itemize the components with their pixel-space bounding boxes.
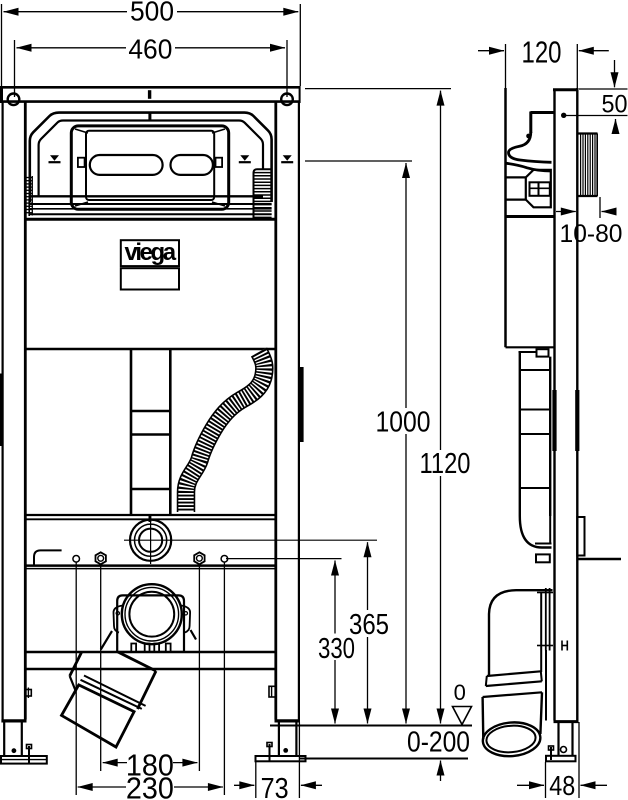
- svg-text:0: 0: [454, 680, 466, 705]
- svg-text:48: 48: [549, 770, 575, 800]
- svg-text:50: 50: [602, 91, 628, 119]
- svg-text:330: 330: [318, 633, 355, 665]
- svg-text:460: 460: [128, 34, 172, 65]
- svg-text:viega: viega: [125, 239, 177, 266]
- svg-text:73: 73: [261, 773, 289, 800]
- svg-text:500: 500: [130, 0, 174, 27]
- svg-text:1000: 1000: [376, 407, 431, 439]
- svg-text:1120: 1120: [420, 448, 471, 480]
- svg-text:10-80: 10-80: [560, 220, 623, 248]
- svg-text:365: 365: [349, 609, 389, 641]
- svg-text:230: 230: [126, 771, 174, 800]
- svg-text:120: 120: [522, 35, 562, 70]
- svg-text:0-200: 0-200: [407, 727, 470, 759]
